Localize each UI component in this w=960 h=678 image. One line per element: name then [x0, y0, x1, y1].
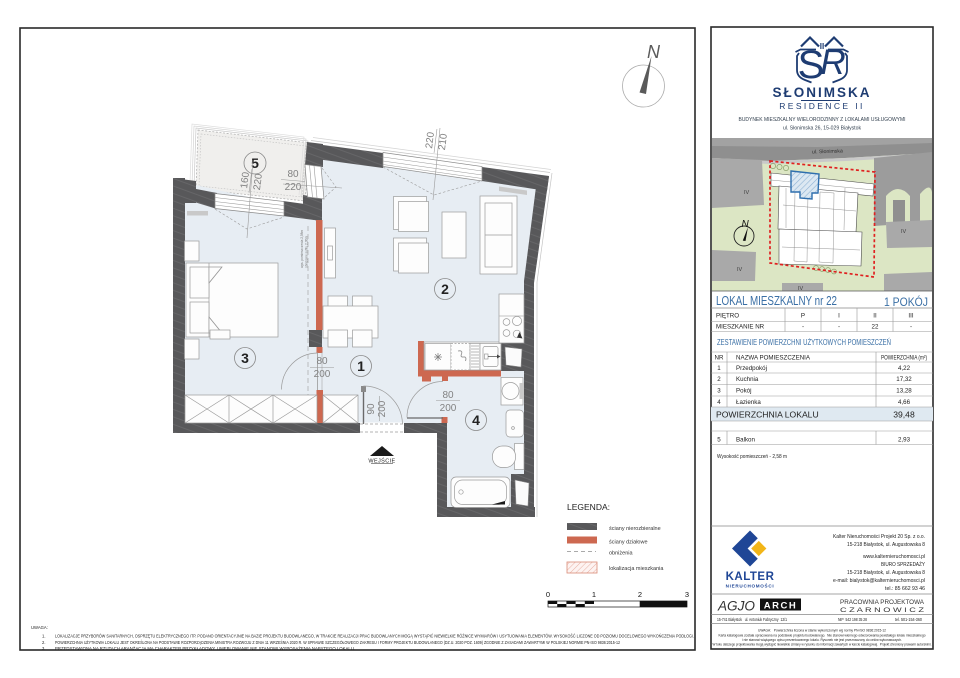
svg-text:lokalizacja mieszkania: lokalizacja mieszkania: [609, 566, 664, 572]
svg-text:ARCH: ARCH: [764, 601, 797, 612]
svg-text:1.: 1.: [42, 634, 46, 639]
svg-text:2: 2: [441, 281, 449, 297]
svg-text:80: 80: [442, 390, 454, 401]
svg-text:200: 200: [440, 403, 457, 414]
svg-text:-: -: [838, 324, 840, 331]
svg-text:BUDYNEK MIESZKALNY WIELORODZIN: BUDYNEK MIESZKALNY WIELORODZINNY Z LOKAL…: [739, 117, 906, 123]
svg-text:AGJO: AGJO: [717, 599, 755, 614]
svg-text:Pokój: Pokój: [736, 388, 751, 395]
svg-text:17,32: 17,32: [896, 376, 912, 383]
svg-text:N: N: [647, 42, 661, 62]
svg-text:P: P: [801, 313, 805, 320]
svg-text:80: 80: [287, 169, 299, 180]
svg-text:III: III: [908, 313, 913, 320]
svg-text:15-218 Białystok, ul. Augustow: 15-218 Białystok, ul. Augustowska 8: [847, 570, 925, 576]
svg-text:220: 220: [252, 173, 265, 191]
svg-text:R: R: [820, 43, 845, 82]
svg-text:4,66: 4,66: [898, 399, 911, 406]
svg-text:5: 5: [717, 437, 721, 444]
svg-text:tel. 501-154-360: tel. 501-154-360: [895, 617, 922, 622]
svg-text:IV: IV: [901, 229, 907, 235]
svg-text:KALTER: KALTER: [726, 571, 775, 583]
svg-text:3: 3: [685, 590, 689, 599]
svg-text:RESIDENCE II: RESIDENCE II: [779, 101, 864, 111]
svg-text:POWIERZCHNIA UŻYTKOWA LOKALU J: POWIERZCHNIA UŻYTKOWA LOKALU JEST OKREŚL…: [55, 640, 621, 645]
svg-text:13,28: 13,28: [896, 388, 912, 395]
svg-text:NR: NR: [715, 355, 724, 362]
svg-text:LOKAL MIESZKALNY nr 22: LOKAL MIESZKALNY nr 22: [716, 294, 837, 308]
svg-text:Łazienka: Łazienka: [736, 399, 761, 406]
svg-text:2: 2: [717, 376, 721, 383]
svg-text:I: I: [838, 313, 840, 320]
svg-text:Kuchnia: Kuchnia: [736, 376, 759, 383]
svg-text:POWIERZCHNIA (m²): POWIERZCHNIA (m²): [881, 355, 927, 362]
svg-text:4: 4: [717, 399, 721, 406]
svg-text:i nie stanowi wiążącego opisu: i nie stanowi wiążącego opisu prezentowa…: [742, 638, 902, 642]
svg-text:3: 3: [241, 350, 249, 366]
svg-text:PIĘTRO: PIĘTRO: [716, 313, 739, 320]
svg-text:-: -: [802, 324, 804, 331]
svg-text:4: 4: [472, 412, 480, 428]
svg-text:II: II: [873, 313, 877, 320]
svg-text:ul. Słonimska 26, 15-029 Biały: ul. Słonimska 26, 15-029 Białystok: [783, 126, 861, 132]
svg-text:Przedpokój: Przedpokój: [736, 365, 767, 372]
svg-text:90: 90: [366, 403, 377, 415]
svg-text:3: 3: [717, 388, 721, 395]
svg-text:IV: IV: [737, 267, 743, 273]
svg-text:ściany działowe: ściany działowe: [609, 540, 648, 546]
svg-text:WEJŚCIE: WEJŚCIE: [368, 457, 395, 465]
svg-text:Kalter Nieruchomości Projekt 2: Kalter Nieruchomości Projekt 20 Sp. z o.…: [833, 534, 925, 540]
svg-text:SŁONIMSKA: SŁONIMSKA: [773, 85, 872, 100]
svg-text:-: -: [910, 324, 912, 331]
svg-text:IV: IV: [744, 190, 750, 196]
svg-text:39,48: 39,48: [893, 410, 915, 420]
svg-text:UWAGA:: UWAGA:: [31, 625, 48, 630]
svg-text:1: 1: [717, 365, 721, 372]
svg-text:ZESTAWIENIE POWIERZCHNI UŻYTKO: ZESTAWIENIE POWIERZCHNI UŻYTKOWYCH POMIE…: [717, 338, 891, 347]
svg-text:LOKALIZACJE PRZYBORÓW SANITARN: LOKALIZACJE PRZYBORÓW SANITARNYCH, OSPRZ…: [55, 634, 694, 639]
svg-text:MIESZKANIE NR: MIESZKANIE NR: [716, 324, 765, 331]
svg-text:UWAGA: Powierzchnia liczona: UWAGA: Powierzchnia liczona w stanie wyk…: [758, 629, 886, 633]
svg-text:wys. pomieszczenia 2,58m: wys. pomieszczenia 2,58m: [300, 230, 304, 268]
svg-text:tel.: 85 662 93 46: tel.: 85 662 93 46: [885, 586, 925, 592]
svg-text:PRACOWNIA PROJEKTOWA: PRACOWNIA PROJEKTOWA: [840, 599, 925, 606]
svg-text:ściany nierozbieralne: ściany nierozbieralne: [609, 526, 661, 532]
svg-text:PRZEDSTAWIONA NA RZUTACH ARANŻ: PRZEDSTAWIONA NA RZUTACH ARANŻACJA MA CH…: [55, 646, 355, 651]
svg-text:LEGENDA:: LEGENDA:: [567, 502, 610, 512]
svg-text:BIURO SPRZEDAŻY: BIURO SPRZEDAŻY: [881, 561, 925, 568]
svg-text:www.kalternieruchomosci.pl: www.kalternieruchomosci.pl: [863, 554, 925, 560]
svg-text:220: 220: [285, 182, 302, 193]
svg-text:Karta katalogowa została oprac: Karta katalogowa została opracowana na p…: [719, 634, 926, 638]
svg-text:22: 22: [872, 324, 879, 331]
svg-text:2.: 2.: [42, 640, 46, 645]
svg-text:1 POKÓJ: 1 POKÓJ: [884, 294, 928, 309]
svg-text:15-741 Białystok ul. Antoniu: 15-741 Białystok ul. Antoniuk Fabryczny …: [717, 617, 787, 622]
svg-text:W toku dalszego projektowania: W toku dalszego projektowania mogą wystą…: [713, 643, 932, 647]
svg-text:4,22: 4,22: [898, 365, 911, 372]
svg-text:1: 1: [357, 358, 365, 374]
svg-text:NAZWA POMIESZCZENIA: NAZWA POMIESZCZENIA: [736, 355, 811, 362]
svg-text:2: 2: [638, 590, 642, 599]
svg-text:POWIERZCHNIA LOKALU: POWIERZCHNIA LOKALU: [716, 410, 819, 420]
svg-text:15-218 Białystok, ul. Augustow: 15-218 Białystok, ul. Augustowska 8: [847, 542, 925, 548]
svg-text:ul. Słonimska: ul. Słonimska: [812, 148, 843, 155]
svg-text:NIERUCHOMOŚCI: NIERUCHOMOŚCI: [726, 583, 775, 589]
svg-text:3.: 3.: [42, 646, 46, 651]
svg-text:C Z A R N O W I C Z: C Z A R N O W I C Z: [840, 607, 924, 614]
svg-text:210: 210: [437, 133, 450, 151]
svg-text:200: 200: [377, 400, 388, 417]
svg-text:0: 0: [546, 590, 550, 599]
svg-text:1: 1: [592, 590, 596, 599]
svg-text:N: N: [742, 219, 750, 230]
svg-text:e-mail: bialystok@kalternieruc: e-mail: bialystok@kalternieruchomosci.pl: [833, 578, 925, 584]
svg-text:Wysokość pomieszczeń - 2,58 m: Wysokość pomieszczeń - 2,58 m: [717, 454, 787, 460]
svg-text:obniżenia: obniżenia: [609, 551, 633, 557]
svg-text:obniżenie sufitu 2,30m: obniżenie sufitu 2,30m: [305, 236, 309, 268]
svg-text:2,93: 2,93: [898, 437, 911, 444]
svg-text:Balkon: Balkon: [736, 437, 755, 444]
svg-text:NIP 542 198 35 28: NIP 542 198 35 28: [838, 617, 867, 622]
